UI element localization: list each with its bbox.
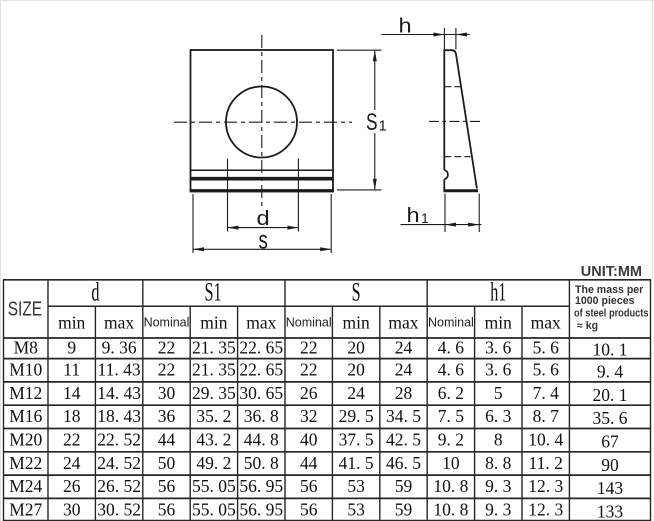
svg-text:8: 8: [494, 429, 503, 449]
svg-text:55. 05: 55. 05: [192, 499, 236, 519]
svg-text:M8: M8: [14, 338, 39, 358]
svg-text:30. 52: 30. 52: [97, 499, 141, 519]
svg-text:M10: M10: [9, 360, 42, 380]
svg-text:22. 65: 22. 65: [239, 338, 283, 358]
svg-text:11. 2: 11. 2: [529, 453, 563, 473]
svg-text:35. 6: 35. 6: [592, 408, 627, 428]
svg-text:SIZE: SIZE: [8, 298, 42, 321]
svg-text:133: 133: [597, 501, 624, 521]
svg-text:S: S: [352, 278, 361, 307]
svg-text:29. 35: 29. 35: [192, 383, 236, 403]
svg-text:M27: M27: [9, 499, 42, 519]
svg-text:Nominal: Nominal: [144, 316, 190, 330]
svg-text:53: 53: [347, 499, 365, 519]
svg-text:41. 5: 41. 5: [339, 453, 374, 473]
svg-text:28: 28: [395, 383, 413, 403]
svg-text:35. 2: 35. 2: [196, 406, 231, 426]
svg-text:1: 1: [379, 118, 387, 135]
svg-text:5: 5: [494, 383, 503, 403]
svg-text:32: 32: [300, 406, 318, 426]
svg-text:43. 2: 43. 2: [196, 429, 231, 449]
svg-text:6. 2: 6. 2: [438, 383, 464, 403]
svg-text:20: 20: [347, 360, 365, 380]
svg-text:59: 59: [395, 476, 413, 496]
svg-text:56: 56: [300, 499, 318, 519]
svg-text:24: 24: [347, 383, 365, 403]
svg-text:8. 8: 8. 8: [485, 453, 512, 473]
svg-text:24: 24: [395, 360, 413, 380]
svg-text:24: 24: [63, 453, 81, 473]
svg-text:M16: M16: [9, 406, 42, 426]
svg-text:22: 22: [158, 338, 176, 358]
svg-text:22: 22: [300, 360, 318, 380]
svg-text:min: min: [200, 313, 227, 333]
svg-text:4. 6: 4. 6: [438, 338, 465, 358]
svg-text:9. 2: 9. 2: [438, 429, 464, 449]
svg-text:56: 56: [300, 476, 318, 496]
svg-text:29. 5: 29. 5: [339, 406, 374, 426]
svg-text:34. 5: 34. 5: [386, 406, 421, 426]
svg-text:6. 3: 6. 3: [485, 406, 512, 426]
svg-text:9. 3: 9. 3: [485, 499, 512, 519]
svg-text:22. 52: 22. 52: [97, 429, 141, 449]
svg-text:S1: S1: [204, 278, 221, 307]
svg-text:42. 5: 42. 5: [386, 429, 421, 449]
svg-text:10. 8: 10. 8: [433, 499, 468, 519]
svg-text:21. 35: 21. 35: [192, 360, 236, 380]
svg-text:56: 56: [158, 499, 176, 519]
svg-text:56. 95: 56. 95: [239, 476, 283, 496]
svg-text:7. 5: 7. 5: [438, 406, 465, 426]
svg-text:M20: M20: [9, 429, 42, 449]
svg-text:max: max: [531, 313, 561, 333]
svg-text:The mass per: The mass per: [575, 284, 643, 296]
svg-text:10. 4: 10. 4: [528, 429, 563, 449]
svg-text:UNIT:MM: UNIT:MM: [581, 264, 642, 280]
svg-text:1000 pieces: 1000 pieces: [575, 295, 635, 307]
svg-text:30: 30: [63, 499, 81, 519]
svg-text:h1: h1: [490, 278, 506, 307]
svg-text:59: 59: [395, 499, 413, 519]
svg-text:7. 4: 7. 4: [533, 383, 560, 403]
svg-text:44: 44: [158, 429, 176, 449]
svg-text:50: 50: [158, 453, 176, 473]
svg-text:Nominal: Nominal: [286, 316, 332, 330]
svg-text:55. 05: 55. 05: [192, 476, 236, 496]
svg-text:21. 35: 21. 35: [192, 338, 236, 358]
svg-text:22: 22: [158, 360, 176, 380]
svg-text:9. 3: 9. 3: [485, 476, 512, 496]
svg-text:46. 5: 46. 5: [386, 453, 421, 473]
svg-text:53: 53: [347, 476, 365, 496]
svg-text:d: d: [91, 278, 99, 307]
svg-text:11: 11: [63, 360, 80, 380]
svg-text:12. 3: 12. 3: [528, 476, 563, 496]
svg-text:44: 44: [300, 453, 318, 473]
svg-text:49. 2: 49. 2: [196, 453, 231, 473]
svg-text:s: s: [259, 224, 268, 254]
svg-text:24. 52: 24. 52: [97, 453, 141, 473]
svg-text:9: 9: [67, 338, 76, 358]
svg-text:26: 26: [63, 476, 81, 496]
svg-text:of steel products: of steel products: [574, 308, 649, 320]
svg-text:min: min: [342, 313, 369, 333]
svg-text:max: max: [104, 313, 134, 333]
svg-text:36: 36: [158, 406, 176, 426]
svg-text:S: S: [366, 109, 378, 135]
svg-text:143: 143: [597, 478, 624, 498]
svg-text:30. 65: 30. 65: [239, 383, 283, 403]
svg-text:M24: M24: [9, 476, 42, 496]
svg-text:10. 8: 10. 8: [433, 476, 468, 496]
svg-text:5. 6: 5. 6: [533, 338, 560, 358]
svg-text:12. 3: 12. 3: [528, 499, 563, 519]
svg-text:67: 67: [601, 431, 619, 451]
svg-text:30: 30: [158, 383, 176, 403]
svg-text:4. 6: 4. 6: [438, 360, 465, 380]
svg-text:min: min: [485, 313, 512, 333]
svg-text:14: 14: [63, 383, 81, 403]
svg-text:20: 20: [347, 338, 365, 358]
svg-text:10. 1: 10. 1: [592, 340, 627, 360]
svg-text:≈ kg: ≈ kg: [577, 320, 598, 332]
svg-text:26. 52: 26. 52: [97, 476, 141, 496]
svg-text:26: 26: [300, 383, 318, 403]
svg-text:22: 22: [300, 338, 318, 358]
svg-text:18: 18: [63, 406, 81, 426]
svg-text:40: 40: [300, 429, 318, 449]
svg-text:24: 24: [395, 338, 413, 358]
svg-text:22. 65: 22. 65: [239, 360, 283, 380]
svg-text:56. 95: 56. 95: [239, 499, 283, 519]
svg-text:h: h: [398, 14, 411, 37]
svg-text:14. 43: 14. 43: [97, 383, 141, 403]
svg-text:44. 8: 44. 8: [244, 429, 279, 449]
svg-text:18. 43: 18. 43: [97, 406, 141, 426]
svg-text:90: 90: [601, 455, 619, 475]
svg-text:22: 22: [63, 429, 81, 449]
svg-text:M22: M22: [9, 453, 42, 473]
svg-text:3. 6: 3. 6: [485, 338, 512, 358]
svg-text:56: 56: [158, 476, 176, 496]
svg-text:20. 1: 20. 1: [592, 385, 627, 405]
svg-text:50. 8: 50. 8: [244, 453, 279, 473]
svg-text:5. 6: 5. 6: [533, 360, 560, 380]
svg-text:1: 1: [421, 210, 429, 226]
svg-text:9. 4: 9. 4: [597, 362, 624, 382]
svg-text:9. 36: 9. 36: [102, 338, 137, 358]
svg-text:36. 8: 36. 8: [244, 406, 279, 426]
svg-text:37. 5: 37. 5: [339, 429, 374, 449]
svg-text:M12: M12: [9, 383, 42, 403]
svg-text:11. 43: 11. 43: [98, 360, 141, 380]
svg-text:8. 7: 8. 7: [533, 406, 560, 426]
svg-text:min: min: [58, 313, 85, 333]
svg-text:h: h: [406, 204, 419, 227]
svg-text:max: max: [388, 313, 418, 333]
svg-text:Nominal: Nominal: [428, 316, 474, 330]
svg-text:max: max: [246, 313, 276, 333]
svg-text:10: 10: [442, 453, 460, 473]
svg-text:3. 6: 3. 6: [485, 360, 512, 380]
